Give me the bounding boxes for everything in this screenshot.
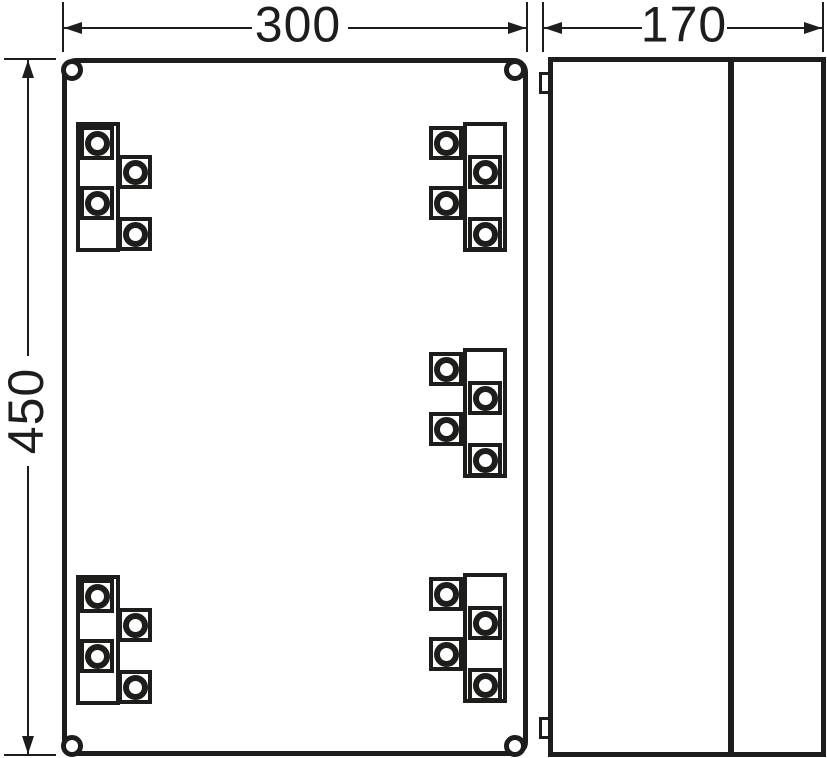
terminal xyxy=(118,670,152,704)
arrowhead-down-icon xyxy=(22,736,34,754)
dimension-width-line-left xyxy=(64,27,252,29)
terminal-hole xyxy=(85,191,110,216)
terminal xyxy=(118,608,152,642)
terminal-hole xyxy=(434,642,459,667)
terminal xyxy=(429,126,463,160)
terminal xyxy=(468,443,502,477)
dimension-width-line-right xyxy=(348,27,526,29)
terminal-hole xyxy=(85,131,110,156)
dimension-depth-label: 170 xyxy=(641,0,727,54)
corner-screw-hole-3 xyxy=(504,735,526,757)
arrowhead-right-icon xyxy=(804,22,822,34)
terminal-group-bottom-right xyxy=(429,573,507,703)
dimension-width-extension-right xyxy=(526,2,528,52)
corner-screw-hole-2 xyxy=(61,735,83,757)
terminal xyxy=(80,186,114,220)
terminal-group-middle-right xyxy=(429,348,507,478)
terminal-hole xyxy=(434,357,459,382)
terminal-group-top-right xyxy=(429,122,507,252)
terminal xyxy=(118,217,152,251)
terminal xyxy=(468,668,502,702)
terminal-hole xyxy=(473,386,498,411)
terminal xyxy=(429,352,463,386)
terminal xyxy=(429,577,463,611)
terminal-hole xyxy=(473,222,498,247)
arrowhead-left-icon xyxy=(544,22,562,34)
terminal xyxy=(468,606,502,640)
terminal-hole xyxy=(434,191,459,216)
dimension-height-line-bottom xyxy=(27,466,29,754)
dimension-height-extension-bottom xyxy=(4,754,56,756)
dimension-depth-extension-right xyxy=(822,2,824,52)
corner-screw-hole-0 xyxy=(61,59,83,81)
dimension-width-label: 300 xyxy=(255,0,341,54)
terminal xyxy=(468,217,502,251)
terminal xyxy=(80,579,114,613)
arrowhead-left-icon xyxy=(64,22,82,34)
terminal-hole xyxy=(473,160,498,185)
terminal-hole xyxy=(434,417,459,442)
terminal-hole xyxy=(473,611,498,636)
terminal xyxy=(80,639,114,673)
terminal-group-top-left xyxy=(76,122,154,252)
terminal-group-bottom-left xyxy=(76,575,154,705)
terminal-hole xyxy=(473,673,498,698)
terminal xyxy=(429,637,463,671)
terminal xyxy=(429,186,463,220)
arrowhead-right-icon xyxy=(508,22,526,34)
side-view-outline xyxy=(548,57,826,757)
dimension-height-line-top xyxy=(27,60,29,356)
corner-screw-hole-1 xyxy=(504,59,526,81)
terminal-hole xyxy=(434,131,459,156)
terminal-hole xyxy=(123,675,148,700)
terminal-hole xyxy=(123,613,148,638)
terminal xyxy=(468,155,502,189)
terminal-hole xyxy=(473,448,498,473)
terminal-hole xyxy=(123,160,148,185)
terminal xyxy=(118,155,152,189)
technical-drawing-canvas: 300 170 450 xyxy=(0,0,827,758)
terminal xyxy=(429,412,463,446)
terminal-hole xyxy=(123,222,148,247)
terminal-hole xyxy=(85,644,110,669)
terminal-hole xyxy=(85,584,110,609)
side-view-cover-divider-line xyxy=(728,59,734,755)
dimension-height-label: 450 xyxy=(0,368,55,454)
terminal xyxy=(468,381,502,415)
terminal xyxy=(80,126,114,160)
terminal-hole xyxy=(434,582,459,607)
arrowhead-up-icon xyxy=(22,60,34,78)
